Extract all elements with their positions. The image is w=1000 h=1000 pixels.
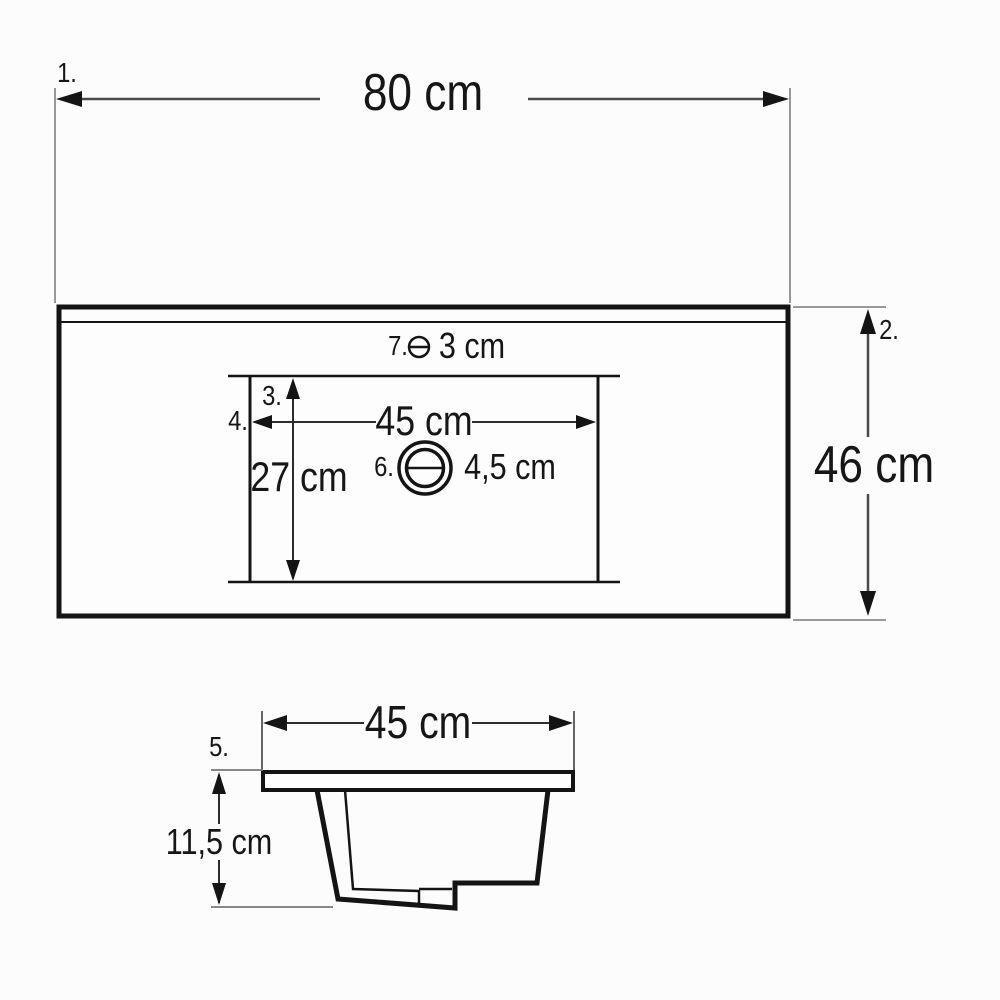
basin-flange (263, 772, 573, 790)
basin-inner-wall (345, 790, 419, 907)
arrow-left-icon (263, 715, 287, 731)
arrow-left-icon (56, 91, 82, 107)
dim-label-overall-width: 80 cm (363, 67, 483, 119)
dim-label-basin-depth: 27 cm (250, 456, 347, 498)
arrow-down-icon (860, 591, 876, 616)
arrow-up-icon (860, 309, 876, 334)
arrow-right-icon (549, 715, 573, 731)
dim-label-basin-width: 45 cm (375, 400, 472, 442)
dimension-diagram: 1. 80 cm 2. 46 cm 7. 3 cm 3. 4. 45 cm 27… (0, 0, 1000, 1000)
arrow-right-icon (763, 91, 789, 107)
side-view-outline (263, 772, 573, 908)
arrow-up-icon (212, 772, 226, 794)
ref-marker-5: 5. (209, 733, 229, 761)
dim-label-basin-height: 11,5 cm (166, 824, 273, 860)
ref-marker-4: 4. (228, 407, 248, 435)
ref-marker-6: 6. (374, 453, 394, 481)
faucet-hole-icon (408, 337, 430, 357)
side-dim-label-basin-width: 45 cm (365, 699, 471, 745)
dim-label-drain: 4,5 cm (464, 449, 556, 485)
diagram-linework (0, 0, 1000, 1000)
ref-marker-1: 1. (57, 59, 77, 87)
basin-outer-wall (317, 790, 548, 908)
ref-marker-2: 2. (879, 316, 899, 344)
drain-icon (399, 442, 451, 494)
dim-label-faucet-hole: 3 cm (439, 328, 505, 364)
dim-label-overall-depth: 46 cm (814, 439, 934, 491)
ref-marker-7: 7. (388, 332, 408, 360)
ref-marker-3: 3. (262, 382, 282, 410)
arrow-down-icon (212, 883, 226, 905)
